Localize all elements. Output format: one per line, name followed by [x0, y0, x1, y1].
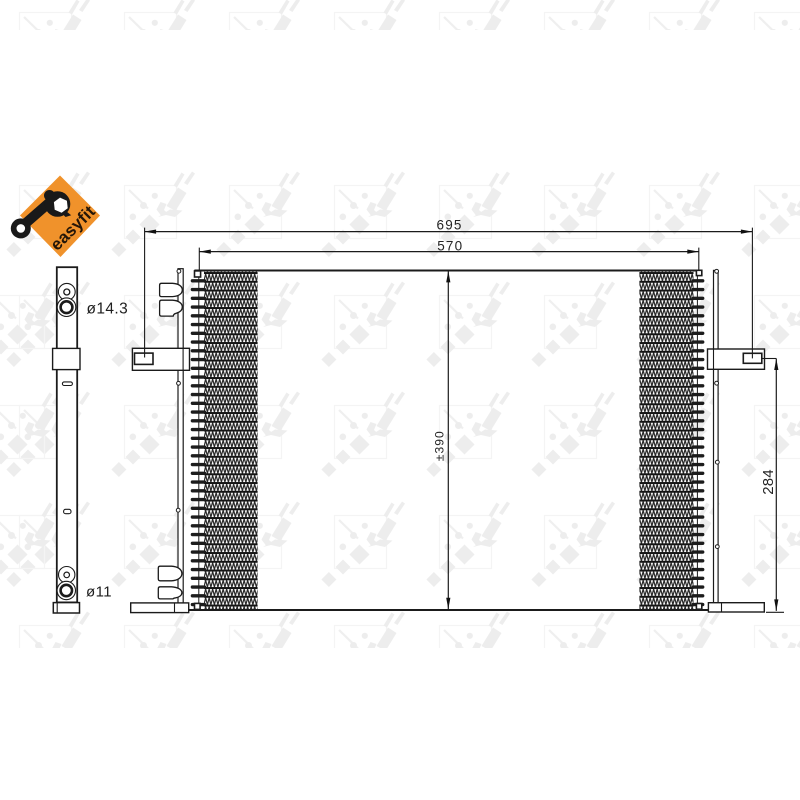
svg-text:±390: ±390	[432, 430, 446, 461]
svg-text:284: 284	[760, 469, 777, 495]
svg-text:695: 695	[437, 218, 463, 233]
svg-text:570: 570	[437, 238, 463, 253]
svg-text:ø11: ø11	[86, 583, 112, 600]
svg-text:ø14.3: ø14.3	[87, 300, 129, 317]
